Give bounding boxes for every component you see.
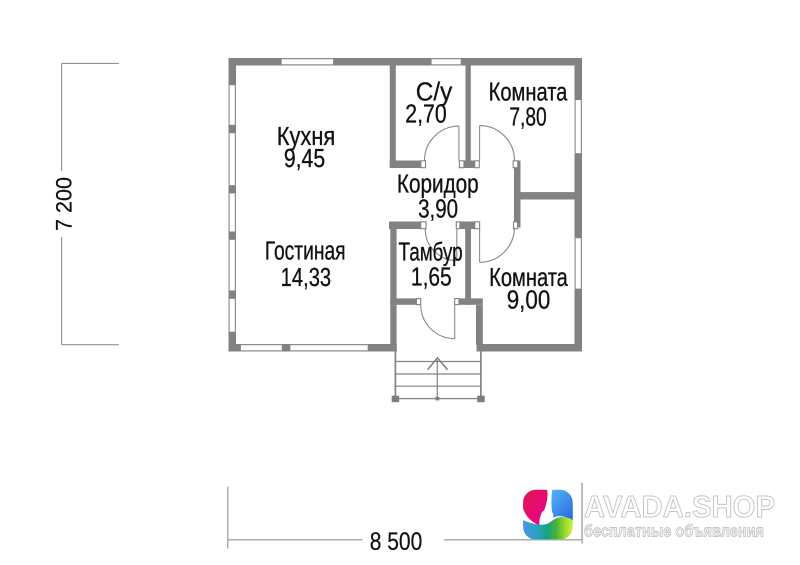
svg-text:3,90: 3,90 [418,194,458,223]
svg-text:Комната: Комната [489,77,568,106]
svg-text:Тамбур: Тамбур [399,238,463,266]
svg-text:14,33: 14,33 [281,263,331,292]
svg-text:Гостиная: Гостиная [265,237,346,265]
svg-text:9,00: 9,00 [507,286,551,315]
svg-text:1,65: 1,65 [411,263,452,291]
svg-text:2,70: 2,70 [405,100,446,128]
svg-text:9,45: 9,45 [284,144,325,172]
svg-text:7,80: 7,80 [509,103,546,131]
svg-text:7 200: 7 200 [51,177,77,231]
svg-text:AVADA.SHOP: AVADA.SHOP [584,490,775,524]
svg-text:8 500: 8 500 [370,527,422,555]
svg-text:бесплатные объявления: бесплатные объявления [584,521,764,540]
